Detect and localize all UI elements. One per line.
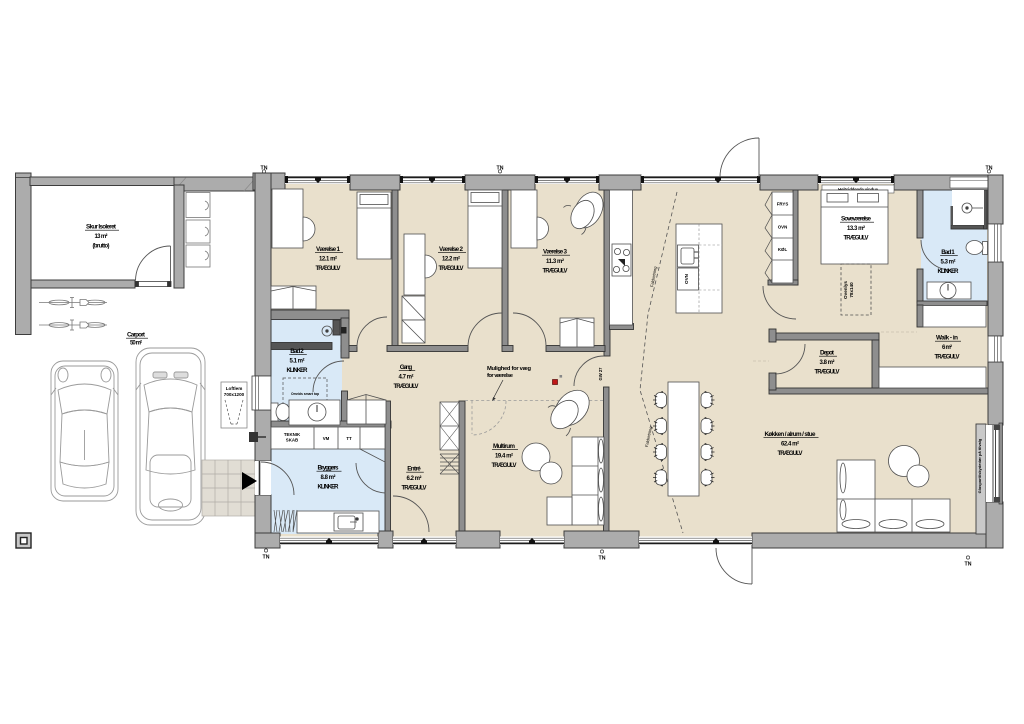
svg-text:Mulighed for væg: Mulighed for væg <box>487 366 531 372</box>
svg-text:TRÆGULV: TRÆGULV <box>543 269 568 275</box>
svg-text:12.2 m²: 12.2 m² <box>442 256 460 263</box>
svg-text:78x140: 78x140 <box>849 282 854 298</box>
svg-text:TN: TN <box>599 556 606 562</box>
svg-text:TRÆGULV: TRÆGULV <box>439 266 464 272</box>
svg-text:Bryggers: Bryggers <box>318 465 339 472</box>
svg-text:TN: TN <box>263 555 270 561</box>
svg-text:Bad 1: Bad 1 <box>941 249 955 256</box>
svg-text:Entré: Entré <box>407 466 421 473</box>
svg-text:TRÆGULV: TRÆGULV <box>316 266 341 272</box>
svg-text:700x1200: 700x1200 <box>224 392 245 397</box>
svg-text:Værelse 2: Værelse 2 <box>439 246 463 253</box>
svg-text:for værelse: for værelse <box>487 373 514 379</box>
svg-text:13.3 m²: 13.3 m² <box>847 225 865 232</box>
svg-text:5.3 m²: 5.3 m² <box>941 259 956 266</box>
svg-text:TN: TN <box>986 165 993 171</box>
svg-text:Køkken / alrum / stue: Køkken / alrum / stue <box>765 431 816 438</box>
svg-text:Værelse 1: Værelse 1 <box>316 246 340 253</box>
svg-text:OVN: OVN <box>778 225 788 230</box>
svg-text:VM: VM <box>323 436 330 441</box>
svg-text:6.2 m²: 6.2 m² <box>407 475 422 482</box>
svg-text:TT: TT <box>346 436 352 441</box>
svg-text:TRÆGULV: TRÆGULV <box>815 370 840 376</box>
svg-text:Multirum: Multirum <box>493 443 515 450</box>
svg-text:Bad 2: Bad 2 <box>290 348 304 355</box>
svg-text:6 m²: 6 m² <box>942 344 952 351</box>
svg-text:TRÆGULV: TRÆGULV <box>402 486 427 492</box>
svg-text:FRYS: FRYS <box>777 202 789 207</box>
svg-text:Omrids smart tap: Omrids smart tap <box>291 392 319 396</box>
svg-text:TN: TN <box>965 562 972 568</box>
svg-text:Værelse 3: Værelse 3 <box>543 249 567 256</box>
svg-text:TRÆGULV: TRÆGULV <box>844 236 869 242</box>
svg-text:SKAB: SKAB <box>286 438 298 443</box>
svg-text:KLINKER: KLINKER <box>938 269 960 275</box>
svg-text:TRÆGULV: TRÆGULV <box>935 355 960 361</box>
svg-text:TRÆGULV: TRÆGULV <box>492 463 517 469</box>
svg-text:12.1 m²: 12.1 m² <box>319 256 337 263</box>
svg-text:50 m²: 50 m² <box>130 340 142 347</box>
svg-text:Glasparti/skydedør på tilvalg: Glasparti/skydedør på tilvalg <box>977 438 982 493</box>
svg-text:4.7 m²: 4.7 m² <box>399 374 414 381</box>
svg-text:TN: TN <box>261 165 268 171</box>
svg-text:Carport: Carport <box>127 332 146 339</box>
svg-text:TRÆGULV: TRÆGULV <box>394 384 419 390</box>
svg-text:Depot: Depot <box>820 350 835 357</box>
svg-text:Skur Isoleret: Skur Isoleret <box>86 224 117 231</box>
svg-text:TRÆGULV: TRÆGULV <box>778 451 803 457</box>
svg-text:Walk - in: Walk - in <box>936 335 958 342</box>
svg-text:KØL: KØL <box>778 247 788 252</box>
svg-text:Gang: Gang <box>400 364 413 371</box>
svg-text:19.4 m²: 19.4 m² <box>495 453 513 460</box>
svg-text:Loftlem: Loftlem <box>226 386 243 391</box>
svg-text:Soveværelse: Soveværelse <box>841 216 871 223</box>
svg-text:(brutto): (brutto) <box>93 244 110 250</box>
svg-text:3.8 m²: 3.8 m² <box>820 359 835 366</box>
svg-text:11.3 m²: 11.3 m² <box>546 258 564 265</box>
svg-text:13 m²: 13 m² <box>95 233 108 240</box>
svg-text:OVN: OVN <box>684 273 689 284</box>
svg-text:GW 27: GW 27 <box>598 367 603 381</box>
svg-text:Ovenlys: Ovenlys <box>843 281 848 299</box>
svg-text:KLINKER: KLINKER <box>287 368 309 374</box>
svg-text:TN: TN <box>497 165 504 171</box>
svg-text:5.1 m²: 5.1 m² <box>290 358 305 365</box>
svg-text:62.4 m²: 62.4 m² <box>781 441 799 448</box>
svg-text:KLINKER: KLINKER <box>318 485 340 491</box>
svg-text:TEKNIK: TEKNIK <box>284 432 301 437</box>
svg-text:8.8 m²: 8.8 m² <box>321 474 336 481</box>
